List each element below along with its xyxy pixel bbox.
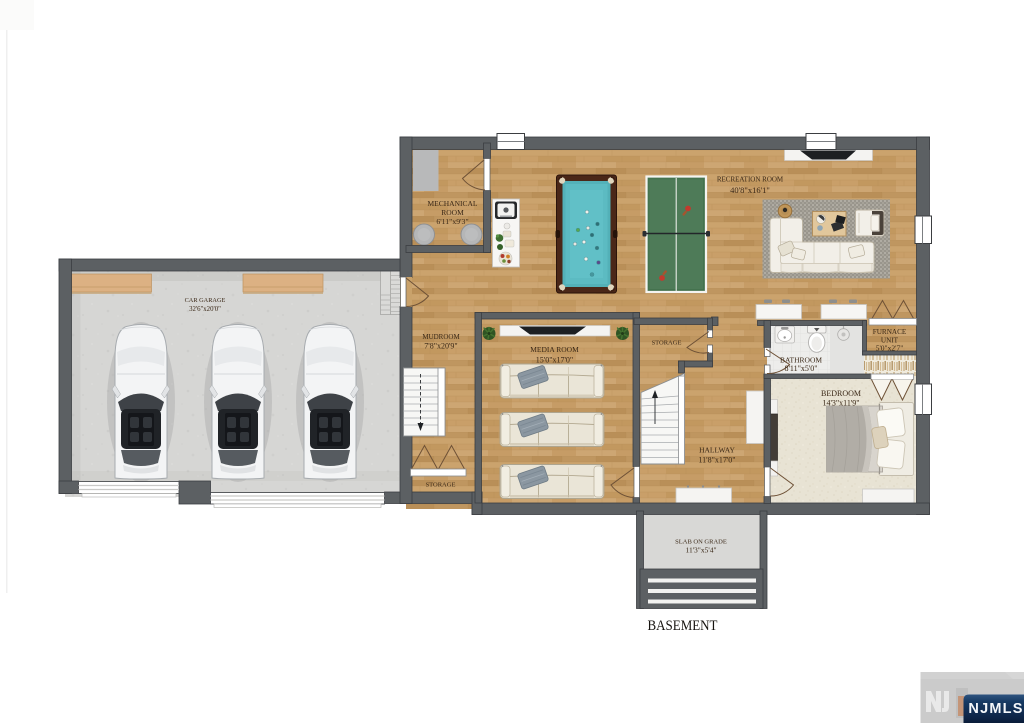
svg-text:7'8"x20'9": 7'8"x20'9" — [424, 342, 457, 351]
svg-text:MEDIA ROOM: MEDIA ROOM — [530, 345, 579, 354]
svg-text:MUDROOM: MUDROOM — [422, 333, 460, 341]
svg-text:FURNACE: FURNACE — [873, 328, 907, 336]
svg-text:NJMLS: NJMLS — [968, 701, 1023, 717]
svg-text:11'3"x5'4": 11'3"x5'4" — [685, 546, 716, 555]
svg-text:MECHANICAL: MECHANICAL — [428, 199, 478, 208]
svg-text:40'8"x16'1": 40'8"x16'1" — [730, 185, 770, 195]
svg-text:5'0"x2'7": 5'0"x2'7" — [876, 344, 904, 353]
svg-text:11'8"x17'0": 11'8"x17'0" — [698, 456, 735, 465]
svg-text:6'11"x9'3": 6'11"x9'3" — [436, 217, 468, 226]
svg-text:CAR GARAGE: CAR GARAGE — [185, 297, 226, 304]
svg-text:32'6"x20'0": 32'6"x20'0" — [189, 306, 221, 313]
svg-text:8'11"x5'0": 8'11"x5'0" — [784, 364, 817, 373]
svg-text:STORAGE: STORAGE — [426, 482, 456, 489]
svg-text:14'3"x11'9": 14'3"x11'9" — [822, 399, 859, 408]
svg-text:BASEMENT: BASEMENT — [648, 618, 718, 634]
svg-text:SLAB ON GRADE: SLAB ON GRADE — [675, 539, 727, 546]
svg-text:BEDROOM: BEDROOM — [821, 389, 861, 398]
svg-text:RECREATION ROOM: RECREATION ROOM — [717, 176, 784, 184]
svg-text:ROOM: ROOM — [441, 208, 464, 217]
svg-text:STORAGE: STORAGE — [652, 340, 682, 347]
svg-text:15'0"x17'0": 15'0"x17'0" — [536, 356, 573, 365]
svg-text:HALLWAY: HALLWAY — [699, 446, 735, 455]
